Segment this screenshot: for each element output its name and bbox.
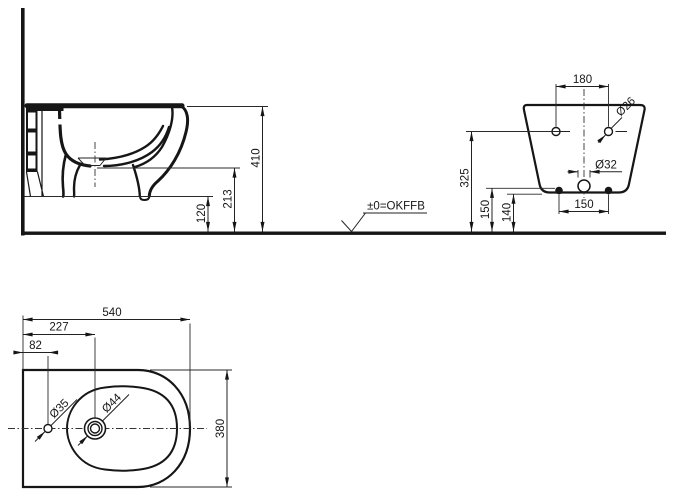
dim-label-140: 140 <box>502 203 514 222</box>
level-marker: ±0=OKFFB <box>342 201 428 232</box>
bowl-clip-notch <box>58 119 62 125</box>
dim-top-dia44: Ø44 <box>78 391 129 445</box>
trap-outline-left <box>63 154 66 197</box>
dim-side-120: 120 <box>196 197 208 232</box>
dim-side-213: 213 <box>97 168 240 232</box>
bidet-technical-drawing: 410 213 120 ±0=OKFFB 180 <box>0 0 673 502</box>
dim-back-150-height: 150 <box>480 188 555 231</box>
floor-line <box>21 232 666 235</box>
technical-drawing-page: 410 213 120 ±0=OKFFB 180 <box>0 0 673 502</box>
dim-label-227: 227 <box>49 322 68 334</box>
dim-label-410: 410 <box>251 148 263 167</box>
leader-arrow <box>35 432 45 442</box>
drain-hole <box>578 180 590 192</box>
dim-label-dia32: Ø32 <box>595 160 617 172</box>
mounting-hole-right <box>605 128 613 136</box>
dim-label-180: 180 <box>573 74 592 86</box>
frame-window <box>28 113 36 129</box>
back-view: 180 Ø26 Ø32 150 325 <box>460 74 645 232</box>
dim-label-540: 540 <box>102 307 121 319</box>
fixing-point-left <box>555 187 563 195</box>
level-label: ±0=OKFFB <box>367 201 425 213</box>
dim-back-dia26: Ø26 <box>598 95 638 142</box>
trap-outline-right <box>74 165 80 197</box>
frame-window <box>28 133 36 152</box>
side-hole <box>44 425 52 433</box>
level-symbol <box>342 213 428 232</box>
dim-back-180: 180 <box>556 74 609 127</box>
dim-label-dia44: Ø44 <box>100 391 124 415</box>
dim-label-325: 325 <box>460 168 472 187</box>
dim-label-dia26: Ø26 <box>614 95 638 119</box>
dim-top-dia35: Ø35 <box>35 397 77 441</box>
bowl-bottom-upper-line <box>100 126 163 160</box>
dim-label-213: 213 <box>223 189 235 208</box>
dim-label-380: 380 <box>215 419 227 438</box>
leader-line <box>612 118 623 129</box>
leader-arrow <box>598 135 606 143</box>
dim-back-140: 140 <box>502 194 543 231</box>
dim-label-150-spacing: 150 <box>574 199 593 211</box>
side-view: 410 213 120 <box>25 104 269 232</box>
fixing-point-right <box>605 187 613 195</box>
dim-label-150-height: 150 <box>480 200 492 219</box>
leader-arrow <box>78 436 88 446</box>
frame-window <box>28 156 36 169</box>
top-view: 540 227 82 380 Ø35 Ø44 <box>8 307 232 487</box>
dim-label-120: 120 <box>196 204 208 223</box>
wall-section-line <box>21 8 25 236</box>
dim-back-dia32: Ø32 <box>568 160 623 178</box>
bidet-foot <box>140 197 149 201</box>
bidet-leg-edge <box>133 165 140 196</box>
dim-label-82: 82 <box>29 340 42 352</box>
